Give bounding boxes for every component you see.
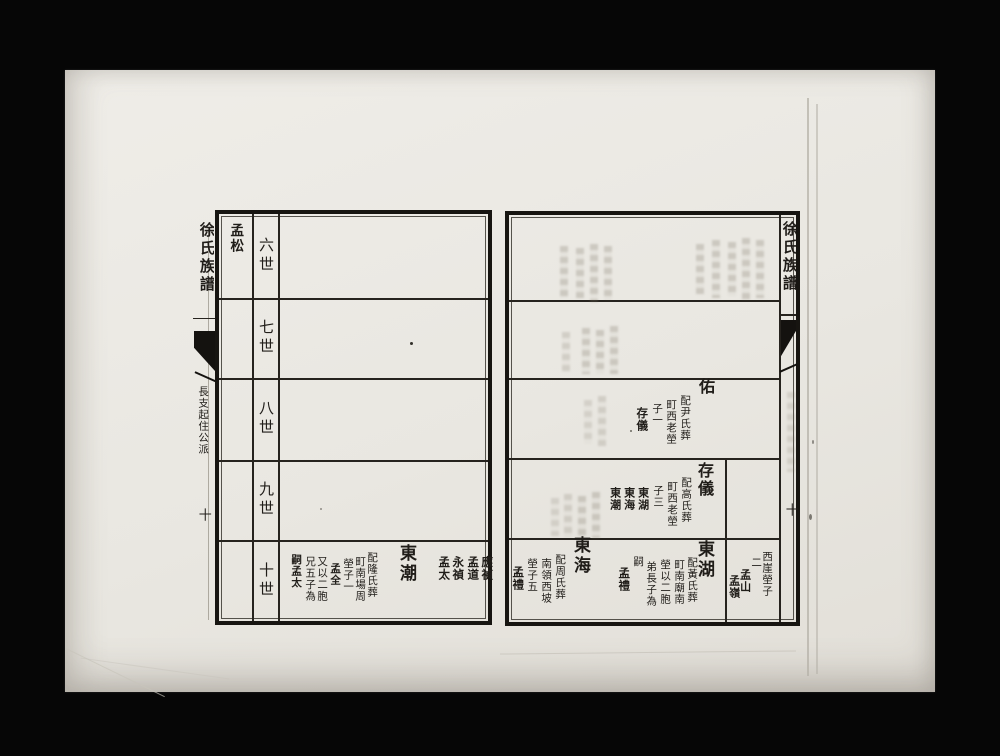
fishtail-tail-line: [779, 363, 797, 372]
note-column: 配尹氏葬: [679, 395, 690, 441]
ink-speck: [630, 430, 632, 432]
note-column: 町西老塋: [666, 481, 677, 527]
generation-label-9: 九世: [257, 481, 273, 519]
banxin-page-number: 十: [783, 503, 797, 516]
banxin-rule: [779, 314, 796, 316]
note-column: 子三: [652, 485, 663, 508]
left-spine-title-clip: 徐氏族譜: [191, 220, 214, 332]
note-column: 塋子五: [526, 558, 537, 593]
fishtail-mark: [781, 320, 797, 362]
note-column-heir-name: 孟全: [329, 563, 340, 586]
note-column-son-name: 東海: [623, 487, 635, 511]
entry-name-cunyi: 存儀: [695, 462, 712, 498]
spine-rule: [193, 318, 215, 319]
generation-cell: 六世: [252, 214, 278, 298]
bleed-through-text: [604, 246, 612, 301]
note-column-son-name: 東湖: [637, 487, 649, 511]
note-column-son-name: 孟禮: [512, 566, 524, 591]
note-column-son-name: 存儀: [636, 407, 648, 432]
note-column: 又以二胞: [316, 556, 327, 602]
generation-cell: 九世: [252, 460, 278, 540]
bleed-through-text: [596, 330, 604, 374]
note-column: 塋以二胞: [659, 559, 670, 605]
note-column: 町西老塋: [665, 399, 676, 445]
generation-label-10: 十世: [257, 562, 273, 600]
note-column: 町南廟南: [673, 559, 684, 605]
carryover-name: 永禎: [452, 556, 464, 581]
note-column: 町南場周: [354, 556, 365, 602]
note-column-heir-name: 嗣孟太: [290, 554, 301, 589]
bleed-through-text: [592, 492, 600, 538]
generation-column-divider: [278, 214, 280, 621]
note-column-son-name: 東潮: [609, 487, 621, 511]
note-column: 子一: [651, 403, 662, 426]
banxin-title: 徐氏族譜: [781, 221, 796, 293]
bleed-through-text: [742, 238, 750, 300]
generation-cell: 十世: [252, 540, 278, 621]
carryover-name: 應禎: [481, 556, 493, 581]
generation-label-7: 七世: [257, 319, 273, 357]
page-edge-line: [816, 104, 818, 674]
left-page-frame: 孟松 六世 七世 八世 九世 十世 應禎 孟道 永禎 孟太 東潮 配隆氏葬 町南…: [215, 210, 492, 625]
note-column: 嗣: [632, 556, 643, 568]
bleed-through-text: [728, 242, 736, 296]
note-column: 配黃氏葬: [686, 557, 697, 603]
bleed-through-text: [584, 400, 592, 444]
margin-note-column: 西崖塋子: [761, 551, 772, 597]
bleed-through-text: [562, 332, 570, 372]
scanned-genealogy-photo: 徐氏族譜 長支起住公派 十 孟松 六世 七世 八世 九世 十世: [0, 0, 1000, 756]
bleed-through-text: [551, 498, 559, 536]
book-paper-sheet: [65, 70, 935, 692]
bleed-through-text: [787, 392, 795, 472]
bleed-through-text: [560, 246, 568, 298]
left-spine-section-label: 長支起住公派: [197, 386, 208, 455]
ink-speck: [812, 440, 814, 444]
generation-cell: 八世: [252, 378, 278, 460]
margin-note-column: 二: [750, 557, 761, 569]
row-divider: [509, 538, 779, 540]
bleed-through-text: [610, 326, 618, 374]
note-column: 塋子一: [342, 558, 353, 593]
bleed-through-text: [598, 396, 606, 446]
entry-name-donghai: 東海: [571, 536, 589, 576]
left-spine-title: 徐氏族譜: [198, 222, 214, 294]
carryover-name: 孟太: [438, 556, 450, 581]
entry-name-you: 佑: [696, 378, 713, 396]
ink-speck: [809, 514, 812, 520]
margin-note-son-name: 孟嶺: [728, 575, 740, 599]
branch-label: 孟松: [228, 223, 242, 254]
ink-speck: [410, 342, 413, 345]
row-divider: [509, 300, 779, 302]
note-column: 兄五子為: [304, 556, 315, 602]
carryover-name: 孟道: [467, 556, 479, 581]
bleed-through-text: [576, 248, 584, 298]
generation-label-6: 六世: [257, 237, 273, 275]
row-divider: [509, 458, 779, 460]
row-divider: [509, 378, 779, 380]
note-column: 配周氏葬: [554, 554, 565, 600]
banxin-title-clip: 徐氏族譜: [780, 221, 796, 321]
note-column-heir-name: 孟禮: [618, 567, 630, 592]
note-column: 配隆氏葬: [366, 552, 377, 598]
note-column: 配高氏葬: [680, 477, 691, 523]
bleed-through-text: [696, 244, 704, 294]
bleed-through-text: [578, 496, 586, 538]
ink-speck: [320, 508, 322, 510]
page-edge-line: [807, 98, 809, 676]
bleed-through-text: [756, 240, 764, 298]
generation-cell: 七世: [252, 298, 278, 378]
bleed-through-text: [712, 240, 720, 298]
note-column: 南領西坡: [540, 558, 551, 604]
bleed-through-text: [582, 328, 590, 374]
margin-cell-divider: [725, 458, 727, 622]
generation-label-8: 八世: [257, 400, 273, 438]
bleed-through-text: [590, 244, 598, 302]
bleed-through-text: [564, 494, 572, 538]
left-spine-page-mark: 十: [196, 508, 210, 521]
note-column: 弟長子為: [645, 561, 656, 607]
entry-name-dongchao: 東潮: [397, 544, 415, 584]
